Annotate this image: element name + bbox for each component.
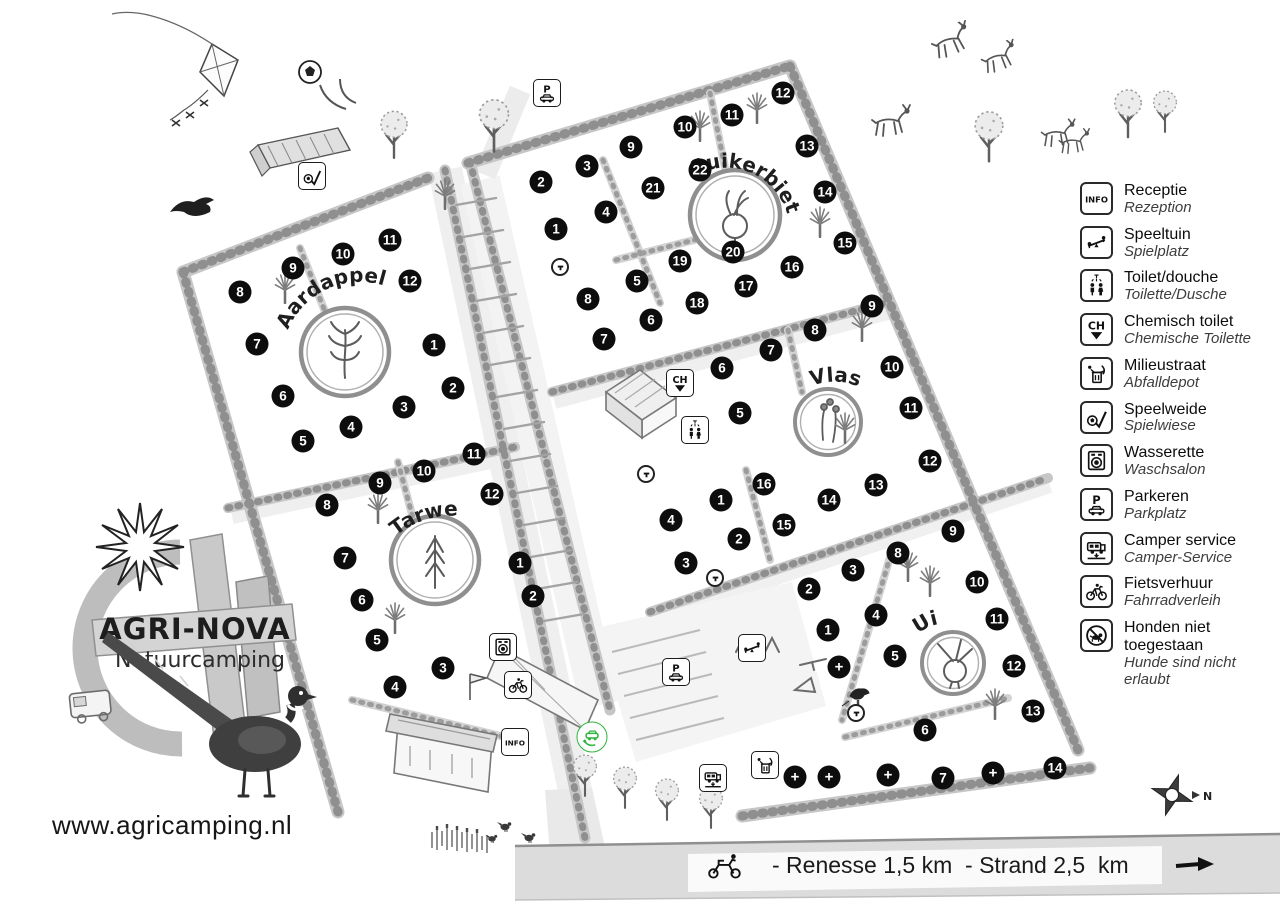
pitch-ui-12: 12: [1003, 655, 1026, 678]
legend-item-2: Speeltuin Spielplatz: [1080, 226, 1280, 261]
water-tap-icon: [706, 569, 724, 587]
pitch-tarwe-1: 1: [509, 552, 532, 575]
pitch-tarwe-2: 2: [522, 585, 545, 608]
pitch-tarwe-9: 9: [369, 472, 392, 495]
camper-icon: [1080, 532, 1113, 565]
pitch-tarwe-4: 4: [384, 676, 407, 699]
extra-pitch-marker: +: [818, 766, 841, 789]
pitch-ui-14: 14: [1044, 757, 1067, 780]
pitch-ui-11: 11: [986, 608, 1009, 631]
pitch-suikerbiet-17: 17: [735, 275, 758, 298]
pitch-vlas-15: 15: [773, 514, 796, 537]
road-distance-label: - Renesse 1,5 km - Strand 2,5 km: [772, 852, 1129, 879]
toilet-icon: [681, 416, 709, 444]
pitch-suikerbiet-4: 4: [595, 201, 618, 224]
pitch-ui-3: 3: [842, 559, 865, 582]
pitch-ui-6: 6: [914, 719, 937, 742]
pitch-ui-5: 5: [884, 645, 907, 668]
pitch-suikerbiet-10: 10: [674, 116, 697, 139]
pitch-vlas-9: 9: [861, 295, 884, 318]
legend-label-nl: Milieustraat: [1124, 357, 1206, 375]
pitch-suikerbiet-3: 3: [576, 155, 599, 178]
speelweide-icon: [1080, 401, 1113, 434]
pitch-vlas-5: 5: [729, 402, 752, 425]
pitch-tarwe-10: 10: [413, 460, 436, 483]
legend-item-1: Receptie Rezeption: [1080, 182, 1280, 217]
pitch-aardappel-1: 1: [423, 334, 446, 357]
speeltuin-icon: [738, 634, 766, 662]
pitch-vlas-14: 14: [818, 489, 841, 512]
parking-icon: [662, 658, 690, 686]
pitch-suikerbiet-11: 11: [721, 104, 744, 127]
pitch-suikerbiet-18: 18: [686, 292, 709, 315]
legend-label-de: Fahrradverleih: [1124, 593, 1221, 610]
legend-item-4: Chemisch toilet Chemische Toilette: [1080, 313, 1280, 348]
pitch-vlas-2: 2: [728, 528, 751, 551]
pitch-suikerbiet-5: 5: [626, 270, 649, 293]
extra-pitch-marker: +: [828, 656, 851, 679]
pitch-tarwe-6: 6: [351, 589, 374, 612]
legend-label-nl: Chemisch toilet: [1124, 313, 1251, 331]
pitch-suikerbiet-9: 9: [620, 136, 643, 159]
legend-label-de: Spielwiese: [1124, 418, 1207, 435]
campsite-map: INFO P CH: [0, 0, 1280, 905]
pitch-aardappel-6: 6: [272, 385, 295, 408]
extra-pitch-marker: +: [877, 764, 900, 787]
legend-label-nl: Wasserette: [1124, 444, 1205, 462]
parking-icon: [1080, 488, 1113, 521]
pitch-vlas-12: 12: [919, 450, 942, 473]
fietsverhuur-icon: [504, 671, 532, 699]
water-tap-icon: [637, 465, 655, 483]
ch-toilet-icon: [1080, 313, 1113, 346]
legend-item-10: Fietsverhuur Fahrradverleih: [1080, 575, 1280, 610]
legend-item-5: Milieustraat Abfalldepot: [1080, 357, 1280, 392]
website-url: www.agricamping.nl: [52, 810, 292, 841]
pitch-vlas-6: 6: [711, 357, 734, 380]
pitch-suikerbiet-1: 1: [545, 218, 568, 241]
legend-label-nl: Toilet/douche: [1124, 269, 1227, 287]
pitch-aardappel-12: 12: [399, 270, 422, 293]
pitch-ui-9: 9: [942, 520, 965, 543]
fietsverhuur-icon: [1080, 575, 1113, 608]
legend-item-7: Wasserette Waschsalon: [1080, 444, 1280, 479]
water-tap-icon: [551, 258, 569, 276]
no-dogs-icon: [1080, 619, 1113, 652]
legend-label-de: Toilette/Dusche: [1124, 287, 1227, 304]
legend-label-de: Chemische Toilette: [1124, 331, 1251, 348]
pitch-vlas-13: 13: [865, 474, 888, 497]
pitch-aardappel-7: 7: [246, 333, 269, 356]
legend-label-nl: Honden niet toegestaan: [1124, 619, 1280, 655]
pitch-tarwe-11: 11: [463, 443, 486, 466]
pitch-ui-4: 4: [865, 604, 888, 627]
wasserette-icon: [1080, 444, 1113, 477]
camper-icon: [699, 764, 727, 792]
pitch-aardappel-10: 10: [332, 243, 355, 266]
toilet-icon: [1080, 269, 1113, 302]
legend-label-nl: Speeltuin: [1124, 226, 1191, 244]
pitch-aardappel-3: 3: [393, 396, 416, 419]
pitch-ui-8: 8: [887, 542, 910, 565]
legend-label-nl: Fietsverhuur: [1124, 575, 1221, 593]
pitch-tarwe-8: 8: [316, 494, 339, 517]
pitch-suikerbiet-2: 2: [530, 171, 553, 194]
pitch-vlas-1: 1: [710, 489, 733, 512]
wasserette-icon: [489, 633, 517, 661]
pitch-vlas-16: 16: [753, 473, 776, 496]
pitch-vlas-3: 3: [675, 552, 698, 575]
legend-label-nl: Receptie: [1124, 182, 1192, 200]
legend-label-nl: Camper service: [1124, 532, 1236, 550]
pitch-suikerbiet-12: 12: [772, 82, 795, 105]
pitch-aardappel-11: 11: [379, 229, 402, 252]
legend-item-9: Camper service Camper-Service: [1080, 532, 1280, 567]
pitch-vlas-4: 4: [660, 509, 683, 532]
info-icon: [1080, 182, 1113, 215]
pitch-tarwe-5: 5: [366, 629, 389, 652]
parking-icon: [533, 79, 561, 107]
pitch-suikerbiet-13: 13: [796, 135, 819, 158]
pitch-tarwe-12: 12: [481, 483, 504, 506]
legend-item-8: Parkeren Parkplatz: [1080, 488, 1280, 523]
pitch-vlas-10: 10: [881, 356, 904, 379]
ch-toilet-icon: [666, 369, 694, 397]
extra-pitch-marker: +: [982, 762, 1005, 785]
pitch-vlas-8: 8: [804, 319, 827, 342]
pitch-suikerbiet-21: 21: [642, 177, 665, 200]
pitch-aardappel-9: 9: [282, 257, 305, 280]
legend-label-nl: Speelweide: [1124, 401, 1207, 419]
pitch-aardappel-2: 2: [442, 377, 465, 400]
legend-label-de: Abfalldepot: [1124, 375, 1206, 392]
legend-item-11: Honden niet toegestaan Hunde sind nicht …: [1080, 619, 1280, 688]
extra-pitch-marker: +: [784, 766, 807, 789]
pitch-suikerbiet-7: 7: [593, 328, 616, 351]
pitch-ui-13: 13: [1022, 700, 1045, 723]
pitch-aardappel-8: 8: [229, 281, 252, 304]
pitch-ui-7: 7: [932, 767, 955, 790]
pitch-ui-10: 10: [966, 571, 989, 594]
pitch-suikerbiet-15: 15: [834, 232, 857, 255]
legend-label-de: Camper-Service: [1124, 550, 1236, 567]
pitch-ui-2: 2: [798, 578, 821, 601]
pitch-suikerbiet-8: 8: [577, 288, 600, 311]
water-tap-icon: [847, 704, 865, 722]
pitch-aardappel-5: 5: [292, 430, 315, 453]
legend-label-de: Waschsalon: [1124, 462, 1205, 479]
pitch-aardappel-4: 4: [340, 416, 363, 439]
milieustraat-icon: [751, 751, 779, 779]
pitch-suikerbiet-19: 19: [669, 250, 692, 273]
ev-charge-icon: [577, 722, 608, 753]
pitch-ui-1: 1: [817, 619, 840, 642]
legend-item-6: Speelweide Spielwiese: [1080, 401, 1280, 436]
pitch-suikerbiet-14: 14: [814, 181, 837, 204]
legend-label-de: Hunde sind nicht erlaubt: [1124, 655, 1280, 689]
pitch-suikerbiet-20: 20: [722, 241, 745, 264]
pitch-suikerbiet-6: 6: [640, 309, 663, 332]
pitch-suikerbiet-22: 22: [689, 159, 712, 182]
speeltuin-icon: [1080, 226, 1113, 259]
legend-label-de: Parkplatz: [1124, 506, 1189, 523]
legend-label-de: Rezeption: [1124, 200, 1192, 217]
info-icon: [501, 728, 529, 756]
pitch-vlas-11: 11: [900, 397, 923, 420]
legend: Receptie Rezeption Speeltuin Spielplatz …: [1080, 182, 1280, 697]
legend-label-nl: Parkeren: [1124, 488, 1189, 506]
legend-item-3: Toilet/douche Toilette/Dusche: [1080, 269, 1280, 304]
legend-label-de: Spielplatz: [1124, 244, 1191, 261]
pitch-tarwe-7: 7: [334, 547, 357, 570]
pitch-tarwe-3: 3: [432, 657, 455, 680]
pitch-vlas-7: 7: [760, 339, 783, 362]
milieustraat-icon: [1080, 357, 1113, 390]
speelweide-icon: [298, 162, 326, 190]
pitch-suikerbiet-16: 16: [781, 256, 804, 279]
